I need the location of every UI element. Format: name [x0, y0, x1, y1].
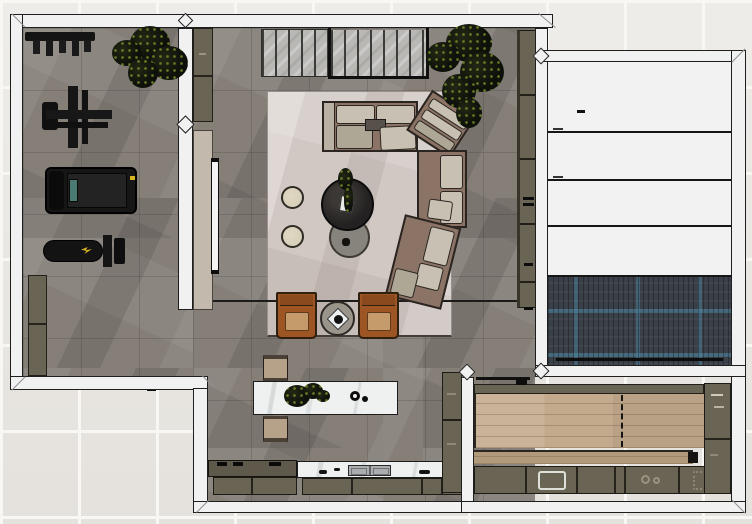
- treadmill-logo: [130, 176, 135, 180]
- cabinet-divider: [614, 467, 616, 493]
- island-flower-decor: [316, 390, 330, 402]
- treadmill-hood: [49, 171, 64, 210]
- armchair-right[interactable]: [358, 292, 399, 339]
- workshop-base-cabinets[interactable]: [474, 466, 731, 494]
- divider-tall-cabinet[interactable]: [193, 28, 213, 122]
- garage-door-panel-2[interactable]: [548, 133, 731, 181]
- armchair-back: [362, 295, 395, 306]
- workshop-round-item: [641, 475, 650, 484]
- barbell-rack[interactable]: [25, 30, 95, 58]
- garage-bay-track: [556, 358, 723, 361]
- island-bench-top[interactable]: [263, 355, 288, 381]
- living-tall-cabinet-column[interactable]: [517, 30, 536, 308]
- foliage: [456, 98, 482, 128]
- garage-door-panel-4[interactable]: [548, 227, 731, 277]
- counter-item: [319, 470, 327, 474]
- pouf[interactable]: [281, 186, 304, 209]
- sofa-side-cushion: [422, 226, 455, 267]
- foliage: [426, 42, 460, 72]
- rack-plate: [33, 40, 40, 54]
- sink-counter[interactable]: [297, 461, 462, 478]
- rack-plate: [46, 40, 53, 56]
- workshop-side-cabinet[interactable]: [704, 383, 731, 494]
- cabinet-handle: [523, 203, 534, 206]
- wall-main-right: [535, 28, 548, 377]
- cabinet-divider: [251, 478, 253, 494]
- garage-door-panel-3[interactable]: [548, 181, 731, 227]
- cabinet-divider: [520, 281, 535, 283]
- treadmill-screen: [69, 179, 78, 202]
- side-table[interactable]: [320, 301, 355, 336]
- cabinet-divider: [29, 323, 46, 325]
- sofa-corner-cushion: [427, 198, 454, 221]
- cabinet-divider: [351, 479, 353, 494]
- counter-item: [419, 470, 430, 474]
- rack-plate: [84, 40, 91, 52]
- cabinet-mark: [714, 406, 724, 408]
- sink-basin-divider: [369, 466, 371, 475]
- sofa-armrest: [324, 103, 335, 150]
- slatted-panel-left[interactable]: [261, 29, 329, 77]
- cabinet-divider: [576, 467, 578, 493]
- kitchen-tall-cabinet[interactable]: [442, 372, 462, 493]
- media-wall-panel[interactable]: [193, 130, 213, 310]
- gym-plant[interactable]: [112, 26, 190, 92]
- weight-bench[interactable]: [43, 235, 125, 267]
- workshop-sink[interactable]: [538, 471, 566, 490]
- coffee-table-plant-sprig: [344, 186, 353, 212]
- floor-step-line: [196, 300, 517, 302]
- gym-storage-cabinet[interactable]: [28, 275, 47, 376]
- workshop-wood-step: [474, 450, 693, 464]
- bench-pad: [43, 240, 103, 262]
- cabinet-divider: [520, 223, 535, 225]
- armchair-back: [280, 295, 313, 306]
- wall-gym-bottom: [10, 376, 208, 390]
- bench-frame: [103, 235, 112, 267]
- kitchen-sink: [348, 465, 391, 476]
- machine-arm: [46, 110, 112, 119]
- sink-basin: [351, 468, 367, 475]
- floor-plan-canvas: [0, 0, 752, 524]
- workshop-rear-band: [474, 384, 704, 394]
- cabinet-divider: [194, 75, 212, 77]
- wall-wing-top: [541, 50, 746, 62]
- armchair-left[interactable]: [276, 292, 317, 339]
- cooktop-counter[interactable]: [208, 460, 297, 477]
- cabinet-mark: [710, 454, 718, 456]
- wall-bay-bottom: [535, 365, 746, 377]
- workshop-door-stop: [516, 379, 527, 385]
- cabinet-divider: [520, 94, 535, 96]
- cooktop-burner: [269, 462, 281, 466]
- cabinet-divider: [525, 467, 527, 493]
- garage-door-tick: [553, 176, 563, 178]
- counter-item: [334, 468, 340, 471]
- armchair-seat: [367, 312, 391, 331]
- wall-workshop-bottom: [461, 501, 746, 513]
- sofa-side-cushion: [440, 155, 463, 189]
- rack-plate: [59, 40, 66, 53]
- workshop-step-handle: [688, 452, 698, 463]
- gray-table-decor: [342, 238, 350, 246]
- workshop-floor-dashed-line: [621, 395, 623, 447]
- wall-kitchen-bottom: [193, 501, 474, 513]
- island-ring-item: [350, 391, 360, 401]
- cabinet-divider: [520, 158, 535, 160]
- cabinet-mark: [711, 394, 723, 396]
- machine-arm: [56, 122, 108, 128]
- wall-workshop-left: [461, 377, 474, 513]
- slatted-panel-right: [331, 30, 426, 76]
- cabinet-mark: [447, 443, 456, 445]
- treadmill[interactable]: [45, 167, 137, 214]
- garage-door-tick: [553, 128, 563, 130]
- garage-bay-floor: [548, 277, 731, 365]
- cabinet-handle: [523, 197, 534, 200]
- wall-wing-right: [731, 50, 746, 513]
- island-bench-bottom[interactable]: [263, 416, 288, 442]
- living-plant[interactable]: [420, 24, 506, 132]
- cabinet-handle: [524, 307, 533, 310]
- side-table-item: [334, 315, 343, 324]
- workshop-wood-floor: [474, 394, 704, 448]
- cooktop-burner: [233, 462, 243, 466]
- cabinet-mark: [447, 393, 456, 395]
- slatted-panel-frame[interactable]: [328, 24, 429, 79]
- kitchen-cabinet-left[interactable]: [213, 477, 297, 495]
- rack-plate: [72, 40, 79, 56]
- island-dot-item: [362, 396, 368, 402]
- cooktop-burner: [217, 462, 227, 466]
- garage-door-panel-1[interactable]: [548, 62, 731, 133]
- cabinet-mark: [199, 53, 206, 55]
- cable-machine[interactable]: [42, 86, 114, 148]
- cabinet-divider: [421, 479, 423, 494]
- cabinet-handle: [524, 263, 533, 266]
- wall-kitchen-left: [193, 388, 208, 513]
- kitchen-cabinet-bottom[interactable]: [302, 478, 462, 495]
- pouf[interactable]: [281, 225, 304, 248]
- foliage: [128, 58, 158, 88]
- bench-plates: [114, 238, 125, 264]
- wall-left: [10, 14, 23, 390]
- sectional-sofa-horizontal[interactable]: [322, 101, 418, 152]
- armchair-seat: [285, 312, 309, 331]
- garage-door-handle: [577, 110, 585, 113]
- wall-tv[interactable]: [211, 158, 219, 274]
- cabinet-divider: [705, 438, 730, 440]
- workshop-round-item: [653, 477, 660, 484]
- cabinet-divider: [678, 467, 680, 493]
- sink-basin: [373, 468, 389, 475]
- cabinet-divider: [624, 467, 626, 493]
- cabinet-divider: [443, 419, 461, 421]
- sofa-side-cushion: [414, 262, 444, 291]
